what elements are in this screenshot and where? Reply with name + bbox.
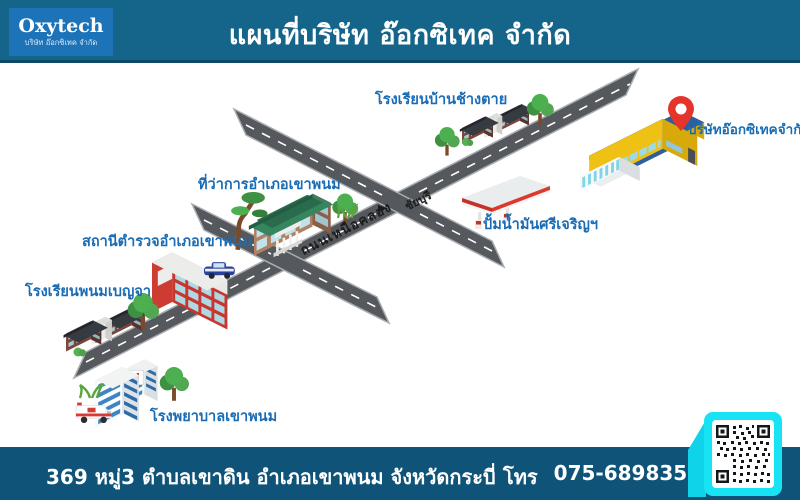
label-gas-station: ปั้มน้ำมันศรีเจริญฯ [483,213,598,236]
label-hospital: โรงพยาบาลเขาพนม [150,405,277,428]
bush-icon [462,138,473,146]
qr-code [688,412,782,497]
label-school-west: โรงเรียนพนมเบญจา [25,280,151,303]
label-school-north: โรงเรียนบ้านช้างตาย [375,88,507,111]
label-district-office: ที่ว่าการอำเภอเขาพนม [198,173,341,196]
palm-grass-icon [80,385,102,398]
tree-icon [160,367,189,401]
label-police-station: สถานีตำรวจอำเภอเขาพนม [82,230,252,253]
map-poster: H [0,0,800,500]
label-company: บริษัทอ๊อกซิเทคจำกัด [688,118,800,140]
tree-icon [435,127,460,156]
bush-icon [74,348,87,357]
